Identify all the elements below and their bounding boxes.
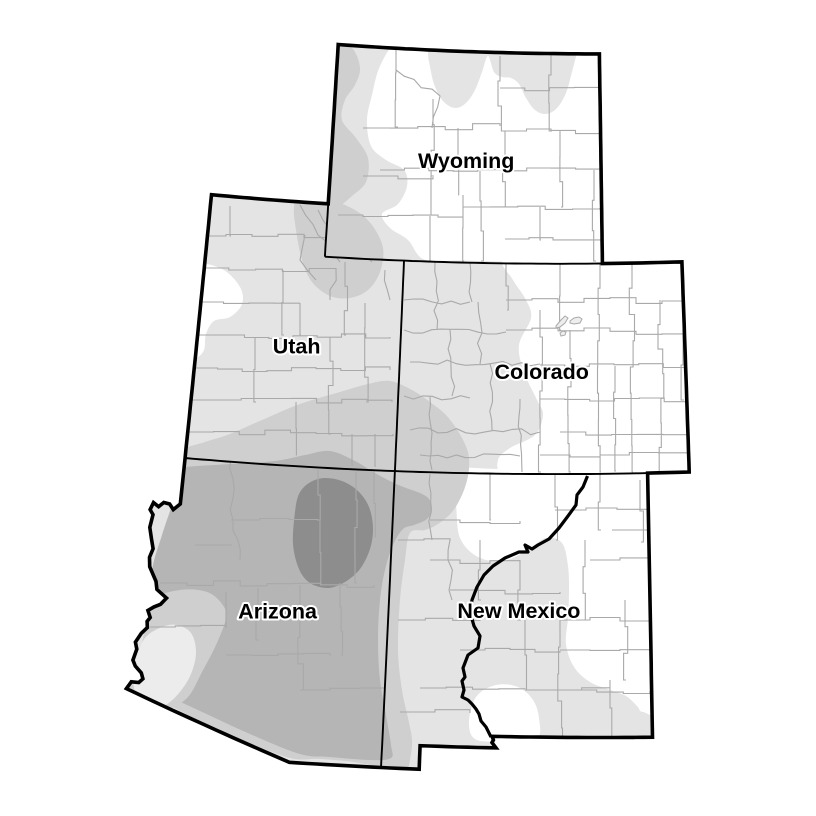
svg-text:Wyoming: Wyoming <box>418 149 514 173</box>
svg-text:Arizona: Arizona <box>238 600 318 624</box>
svg-text:New Mexico: New Mexico <box>457 599 580 623</box>
svg-text:Colorado: Colorado <box>495 360 589 384</box>
svg-text:Utah: Utah <box>273 335 321 359</box>
